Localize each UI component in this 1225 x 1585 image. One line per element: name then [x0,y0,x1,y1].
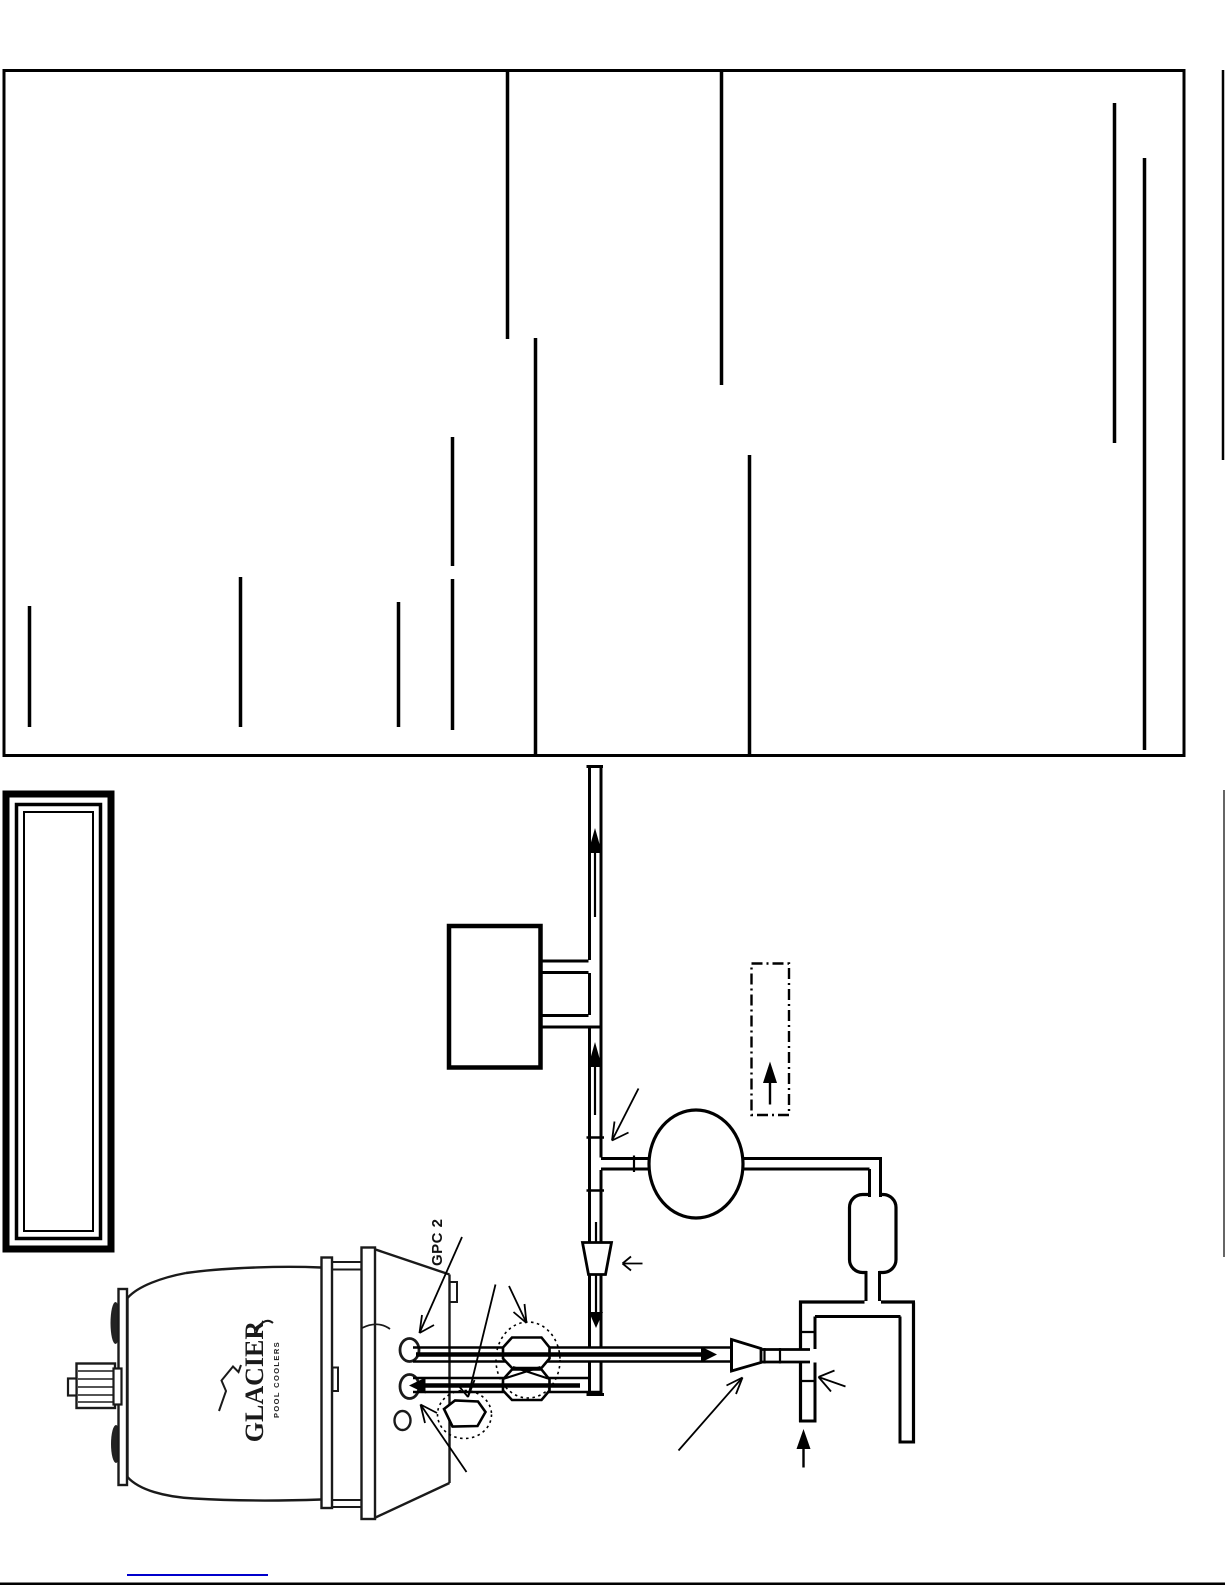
cooler-body-corner2 [128,1477,195,1499]
cooler-body-corner [128,1273,187,1298]
pump-discharge-pipe [743,1159,882,1198]
flow-arrow-up-icon [763,1062,777,1105]
cooler-body-bottom [194,1499,321,1501]
adjacent-page-edge [0,70,1225,1584]
surge-tank [449,926,601,1068]
suction-manifold [762,1301,915,1444]
tank-connector-pipes [543,961,602,1027]
schematic-canvas [0,0,1225,1585]
pump [649,1110,743,1218]
unit-model-label: GPC 2 [429,1208,449,1266]
spec-table-border [4,71,1184,756]
pointer-arrow-icon [458,1285,496,1398]
flow-arrow-up-icon [797,1429,811,1468]
cooler-spigot [68,1364,122,1409]
cooler-body-top [186,1267,321,1273]
cooler-ring-ties [333,1262,362,1507]
bypass-dashed-box [752,964,790,1116]
flow-arrow-right-icon [416,1347,717,1363]
pointer-arrow-icon [819,1371,846,1392]
footer-link[interactable] [127,1560,268,1576]
scanned-manual-page: GPC 2 GLACIER POOL COOLERS [0,0,1225,1585]
spec-table-rule-lines [30,70,1145,754]
pump-suction-stub [601,1156,650,1173]
brand-wordmark: GLACIER [240,1315,271,1448]
pointer-arrow-icon [612,1089,639,1141]
hex-nut-fitting [438,1391,492,1439]
framed-note-box [6,794,111,1249]
funnel-fitting [732,1340,762,1372]
brand-subtitle: POOL COOLERS [272,1338,283,1421]
cooler-outlet-port [400,1339,419,1362]
cooler-spare-port [395,1411,411,1430]
pointer-arrow-icon [509,1286,527,1323]
funnel-union-stub [762,1348,810,1364]
reducer-fitting [583,1243,612,1275]
pointer-arrow-icon [623,1257,643,1271]
spec-table [4,70,1184,756]
strainer-vessel [850,1159,897,1302]
cooler-flange [362,1248,376,1520]
cooler-inner-ring [322,1258,333,1509]
pointer-arrow-icon [679,1378,743,1451]
